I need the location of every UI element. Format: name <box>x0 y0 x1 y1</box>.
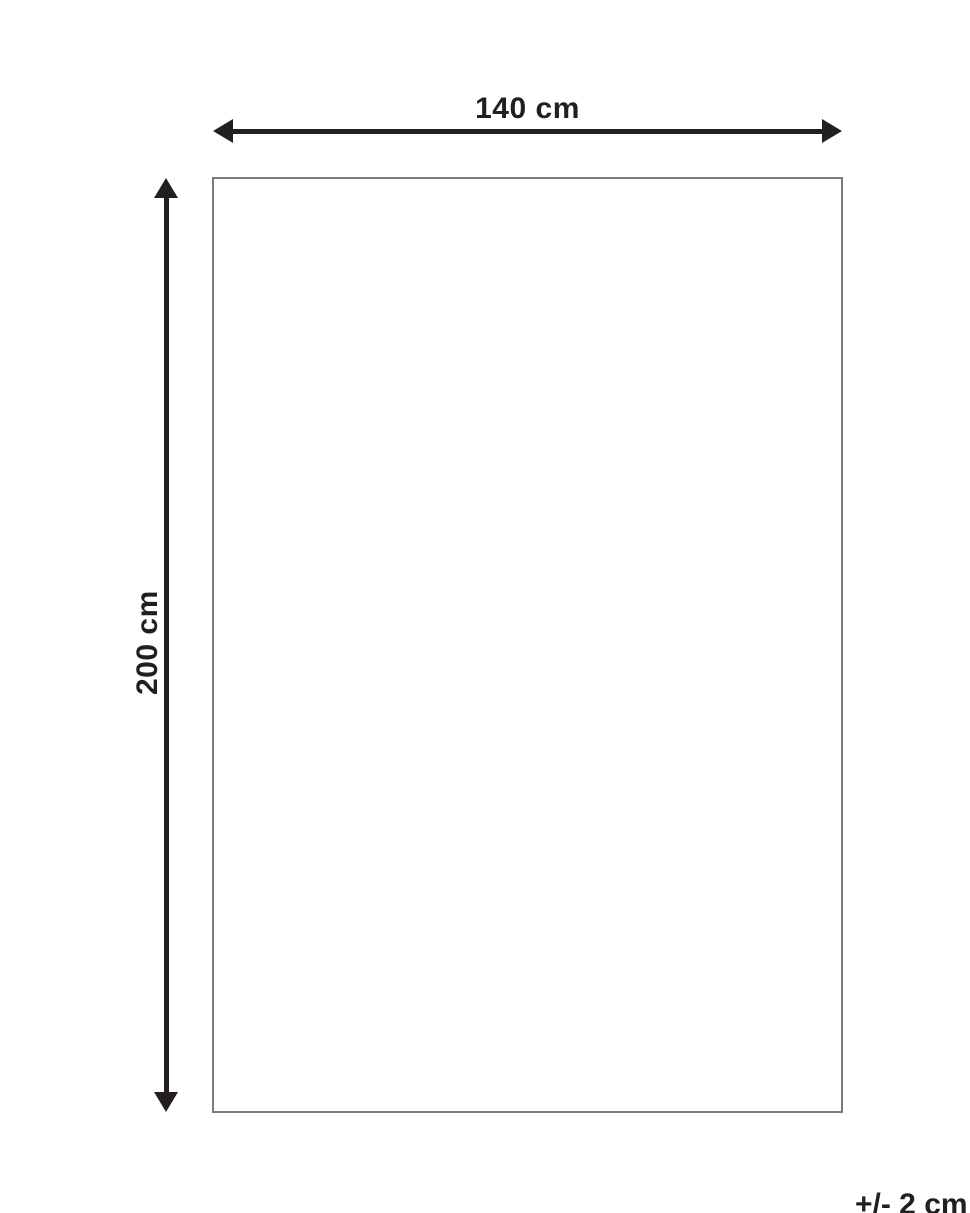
product-outline-rect <box>212 177 843 1113</box>
arrowhead-down-icon <box>154 1092 178 1112</box>
width-dimension-arrow <box>213 118 842 144</box>
height-dimension-arrow <box>153 178 179 1112</box>
dimension-diagram: 140 cm 200 cm +/- 2 cm <box>0 0 970 1213</box>
arrowhead-right-icon <box>822 119 842 143</box>
height-arrow-shaft <box>164 196 169 1094</box>
arrowhead-left-icon <box>213 119 233 143</box>
tolerance-label: +/- 2 cm <box>855 1189 968 1213</box>
arrowhead-up-icon <box>154 178 178 198</box>
width-arrow-shaft <box>231 129 824 134</box>
